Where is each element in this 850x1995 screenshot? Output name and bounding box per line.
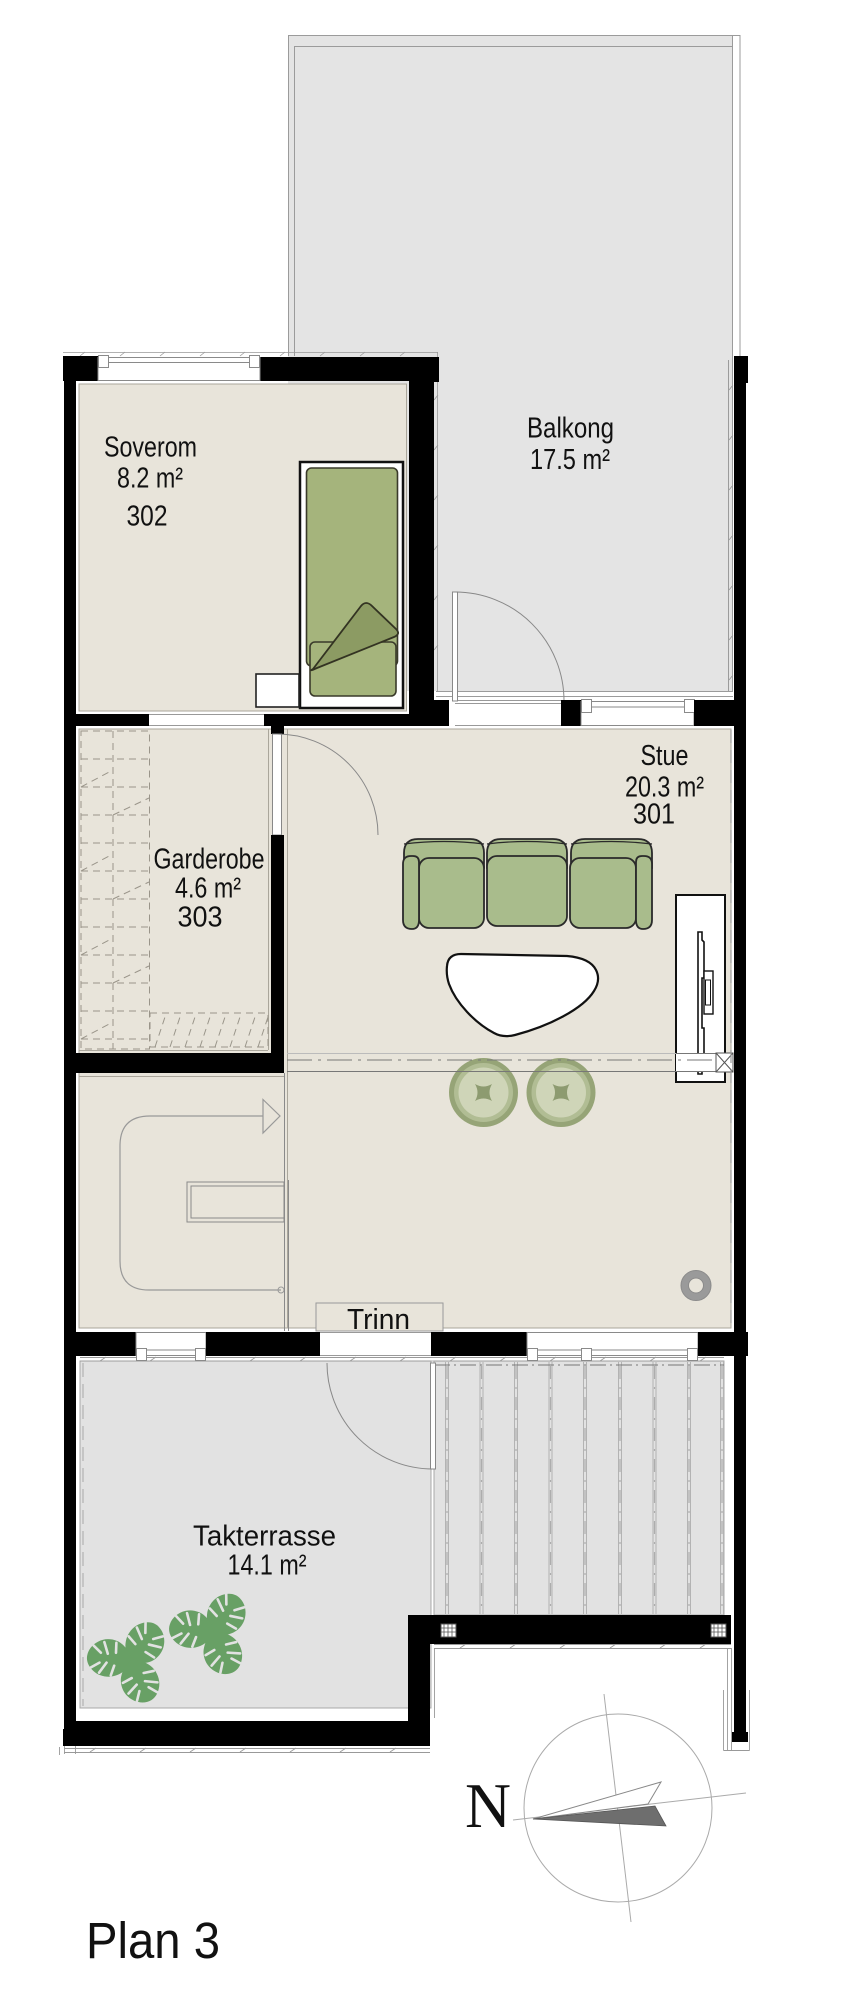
svg-text:301: 301 bbox=[633, 799, 675, 831]
svg-text:8.2 m²: 8.2 m² bbox=[117, 463, 183, 495]
svg-text:14.1 m²: 14.1 m² bbox=[228, 1550, 307, 1582]
svg-text:Garderobe: Garderobe bbox=[154, 844, 265, 876]
svg-text:N: N bbox=[465, 1770, 511, 1841]
svg-text:Stue: Stue bbox=[641, 740, 689, 772]
svg-text:Soverom: Soverom bbox=[104, 432, 197, 464]
svg-text:4.6 m²: 4.6 m² bbox=[175, 873, 241, 905]
svg-text:17.5 m²: 17.5 m² bbox=[530, 444, 610, 476]
svg-text:Trinn: Trinn bbox=[347, 1304, 410, 1336]
svg-text:Plan 3: Plan 3 bbox=[86, 1912, 220, 1969]
svg-text:303: 303 bbox=[178, 902, 223, 934]
svg-text:Balkong: Balkong bbox=[527, 413, 614, 445]
svg-text:Takterrasse: Takterrasse bbox=[193, 1521, 336, 1553]
svg-text:302: 302 bbox=[127, 501, 168, 533]
